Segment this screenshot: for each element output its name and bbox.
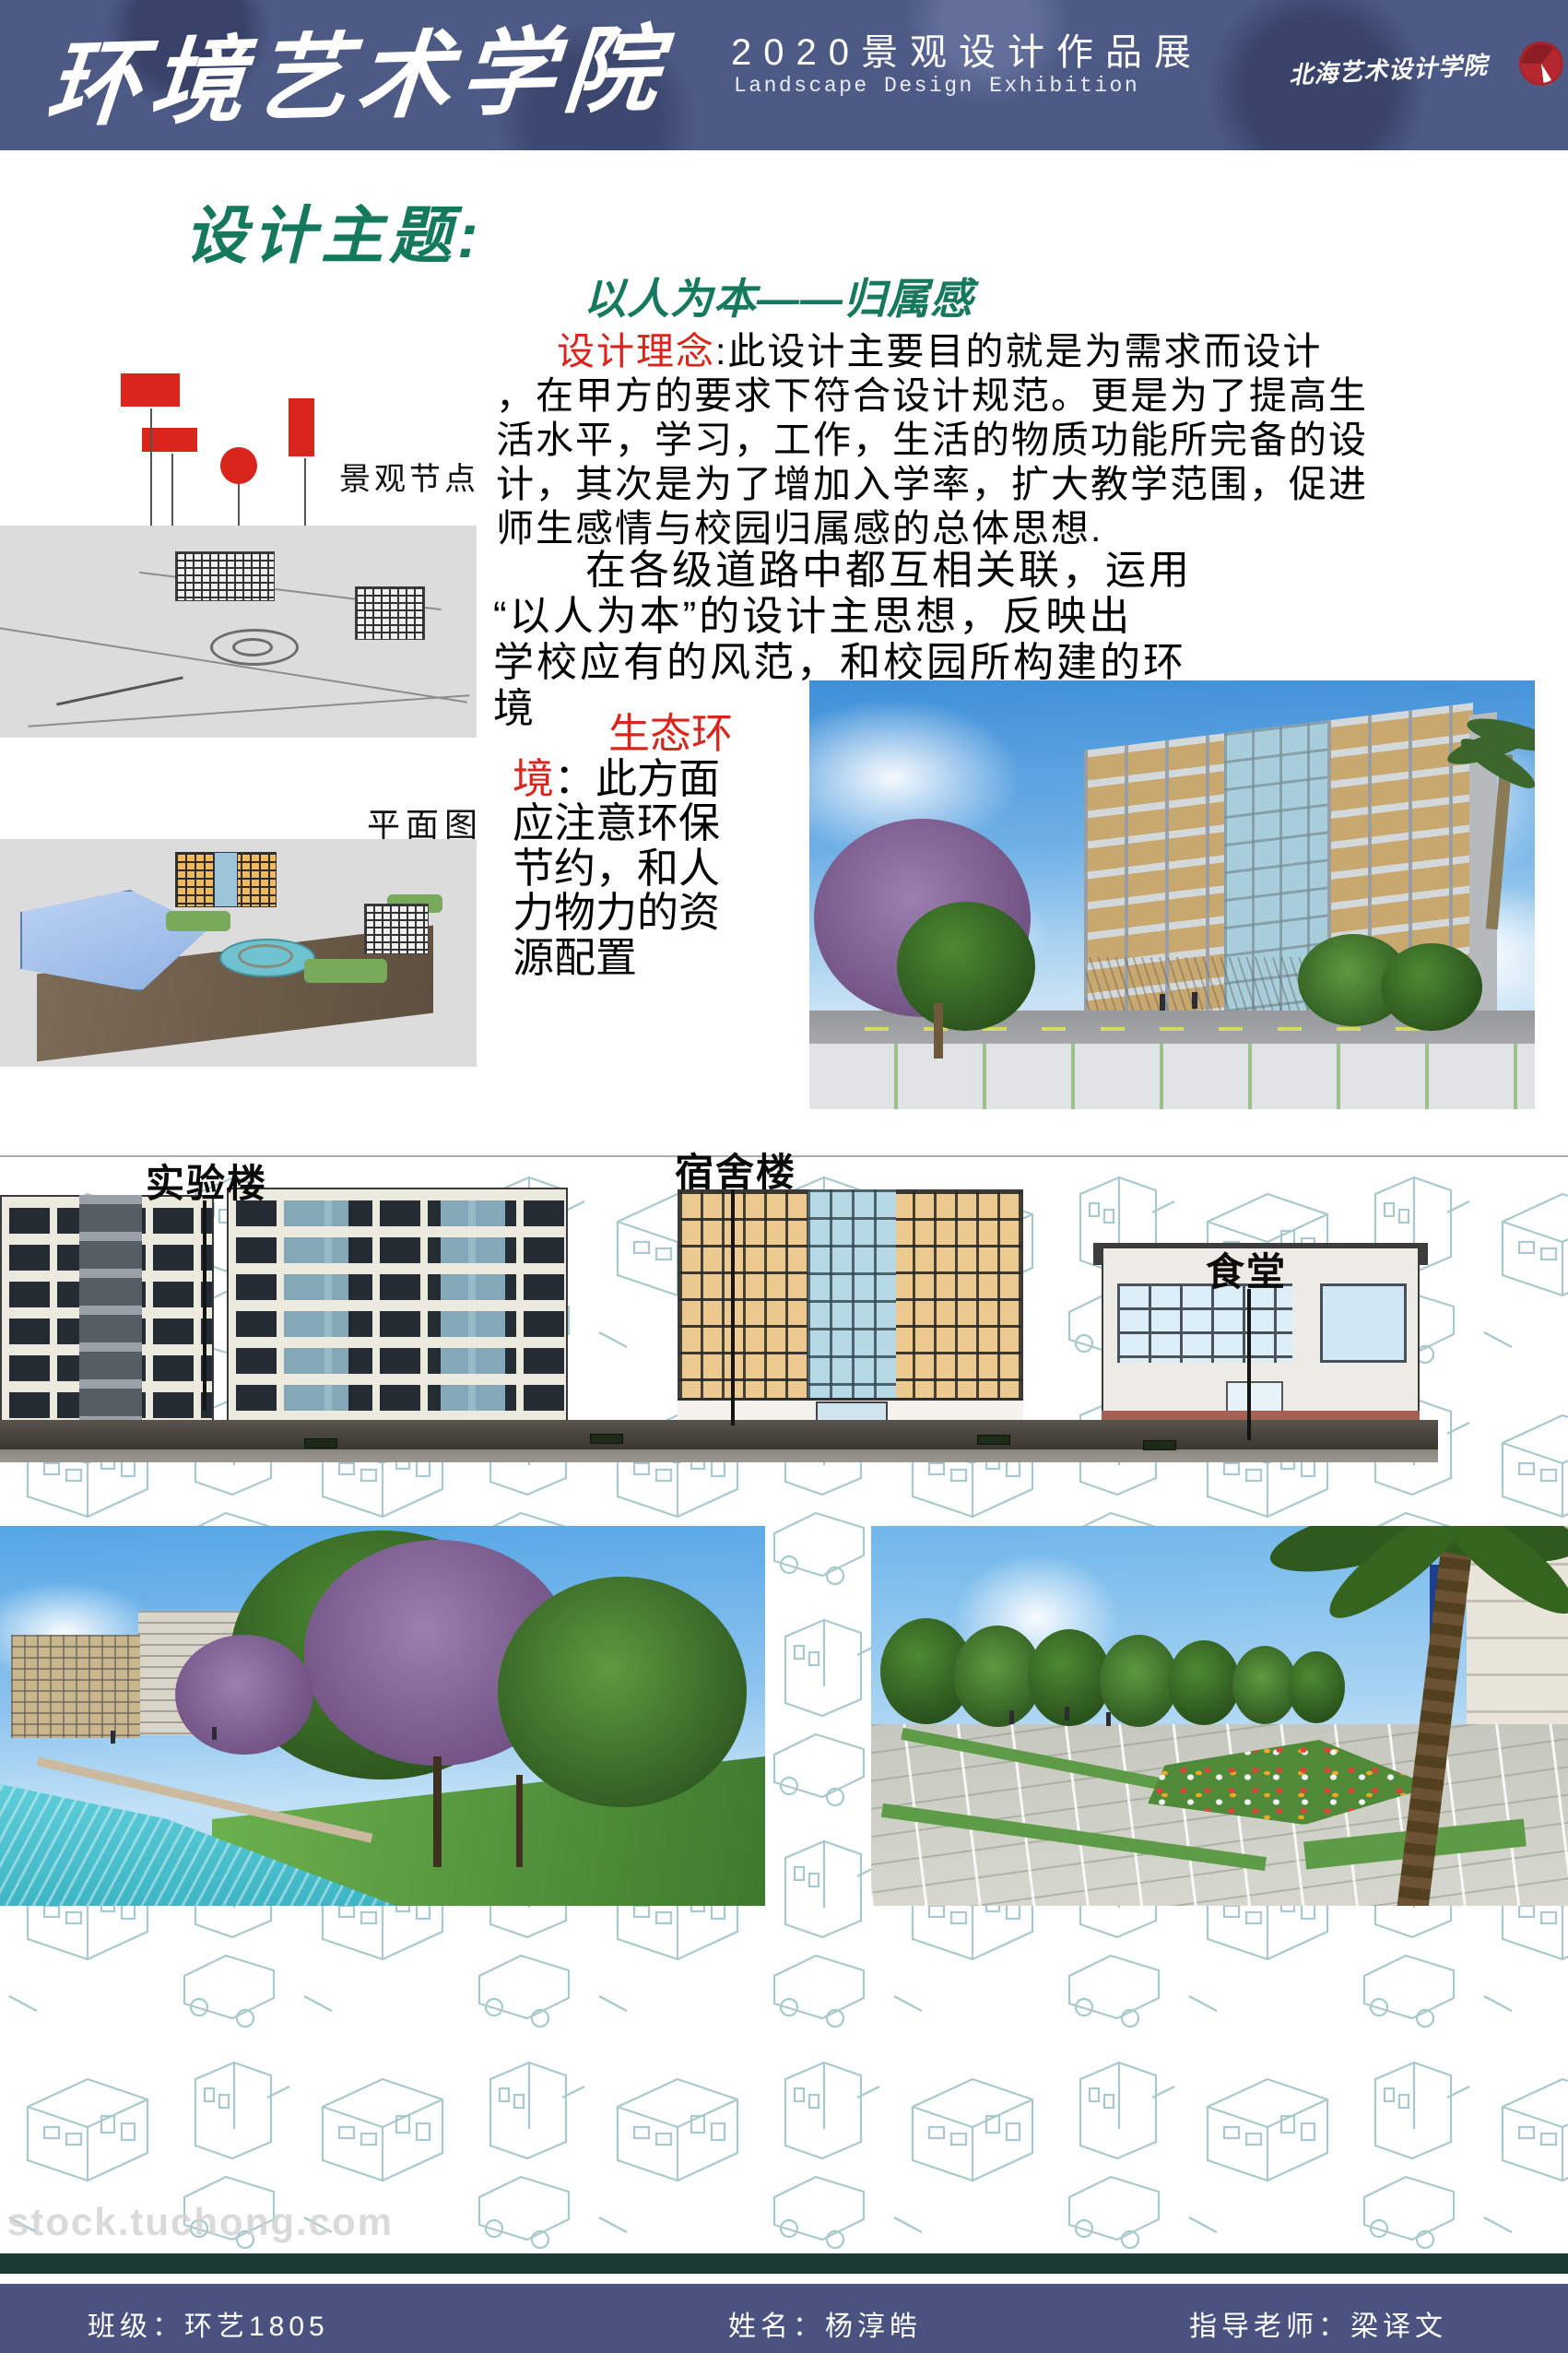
plan1-circular-plaza-inner [232, 638, 273, 656]
footer-class: 班级：环艺1805 [88, 2303, 329, 2344]
divider-bar [0, 2253, 1568, 2274]
site-plan-wireframe-image [0, 526, 477, 738]
planter [590, 1434, 623, 1444]
footer-teacher: 指导老师：梁译文 [1189, 2303, 1447, 2344]
dormitory-leader-line [731, 1189, 735, 1425]
plan1-edge-line [29, 694, 470, 727]
person-figure [212, 1727, 217, 1740]
school-name-calligraphy: 环境艺术学院 [41, 0, 673, 146]
ecology-paragraph: 生态环 境：此方面 应注意环保 节约，和人 力物力的资 源配置 [513, 712, 741, 981]
school-logo-text: 北海艺术设计学院 [1288, 46, 1489, 90]
planter [304, 1438, 337, 1448]
header-banner: 环境艺术学院 2020景观设计作品展 Landscape Design Exhi… [0, 0, 1568, 150]
exhibition-title-en: Landscape Design Exhibition [734, 74, 1139, 98]
lab-leader-line [203, 1200, 206, 1411]
person-figure [1009, 1710, 1014, 1724]
design-concept-label: 设计理念 [557, 330, 715, 372]
person-figure [1106, 1712, 1111, 1726]
elevation-tower-glass [441, 1189, 505, 1427]
photo-retaining-wall [809, 1044, 1535, 1109]
plan2-side-building [364, 904, 429, 954]
plan2-grass-patch [304, 959, 387, 983]
elevation-tower-right [227, 1188, 568, 1429]
exhibition-title-cn: 2020景观设计作品展 [731, 22, 1203, 76]
plan2-grass-patch [166, 911, 230, 931]
elevation-tower-core [79, 1195, 142, 1427]
plan1-road-line [56, 676, 183, 705]
stock-watermark: stock.tuchong.com [7, 2200, 394, 2244]
site-plan-color-image [0, 839, 477, 1067]
person-figure [1065, 1707, 1069, 1720]
dormitory-glass-strip [808, 1189, 896, 1431]
design-theme-subtitle: 以人为本——归属感 [584, 266, 973, 326]
poster-page: 环境艺术学院 2020景观设计作品展 Landscape Design Exhi… [0, 0, 1568, 2353]
roadside-tree [1288, 1651, 1345, 1723]
roadside-tree [1100, 1635, 1178, 1727]
person-figure [1160, 994, 1165, 1011]
node-marker-circle [220, 447, 257, 484]
footer-name: 姓名：杨淳皓 [728, 2303, 922, 2344]
plan1-side-building [355, 586, 425, 640]
school-logo-swirl-icon [1519, 41, 1563, 86]
node-marker-rect-1 [121, 373, 180, 407]
planter [1143, 1440, 1176, 1450]
tree-trunk [516, 1775, 523, 1867]
distant-building [11, 1635, 140, 1738]
campus-building-photo [809, 680, 1535, 1109]
waterfront-photo [0, 1526, 765, 1906]
tree-mass [498, 1577, 747, 1807]
roadside-tree [1028, 1629, 1111, 1726]
plan2-building-glass [214, 852, 238, 907]
person-figure [1192, 992, 1197, 1009]
design-theme-heading: 设计主题: [184, 184, 484, 276]
canteen-glass-wall [1320, 1283, 1407, 1363]
tree-trunk [433, 1756, 442, 1867]
green-tree [1381, 943, 1482, 1031]
tree-trunk [934, 1003, 943, 1058]
design-concept-paragraph: 设计理念:此设计主要目的就是为需求而设计 ，在甲方的要求下符合设计规范。更是为了… [496, 330, 1409, 551]
green-tree [897, 902, 1035, 1031]
canteen-label: 食堂 [1206, 1241, 1287, 1297]
dormitory-label: 宿舍楼 [675, 1141, 796, 1198]
roadside-tree [1168, 1640, 1240, 1725]
plan1-main-building [175, 551, 275, 601]
elevation-tower-glass [284, 1189, 348, 1427]
plan2-circular-plaza [238, 944, 293, 968]
planter [977, 1435, 1010, 1445]
person-figure [111, 1731, 115, 1744]
elevation-ground [0, 1420, 1438, 1462]
plaza-walkway-photo [871, 1526, 1568, 1906]
canteen-entrance [1226, 1381, 1283, 1413]
purple-blossom-tree [175, 1635, 313, 1755]
node-marker-bar [289, 398, 314, 456]
canteen-leader-line [1247, 1289, 1251, 1440]
landscape-node-label: 景观节点 [339, 454, 479, 499]
lab-building-label: 实验楼 [146, 1153, 267, 1209]
